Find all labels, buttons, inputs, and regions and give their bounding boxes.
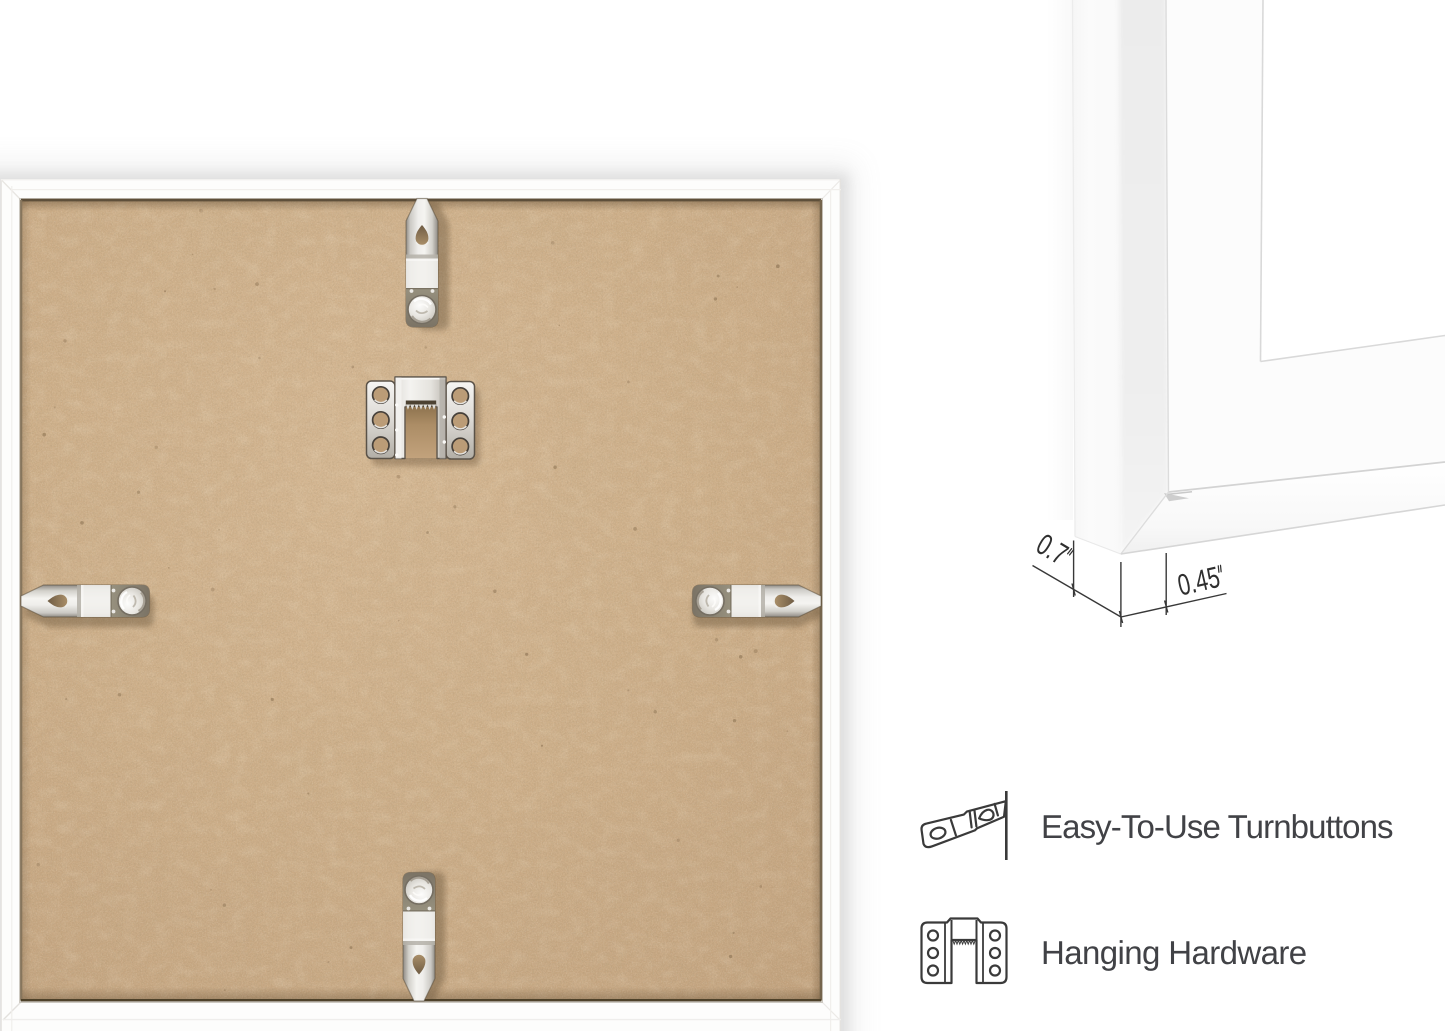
svg-text:Hanging Hardware: Hanging Hardware [1041,934,1307,971]
svg-text:Easy-To-Use Turnbuttons: Easy-To-Use Turnbuttons [1041,808,1393,845]
